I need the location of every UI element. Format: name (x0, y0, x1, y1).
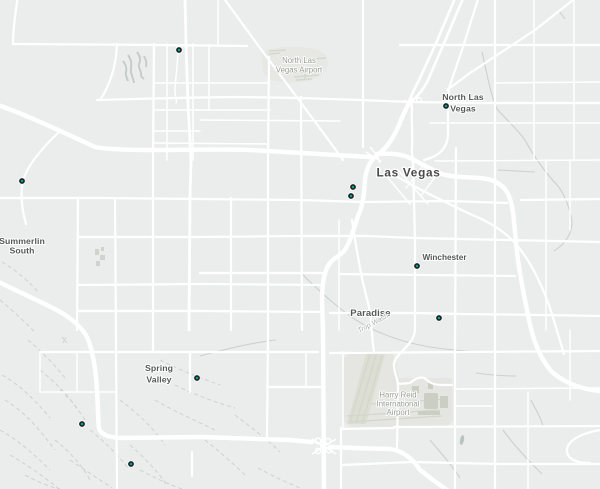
svg-text:North Las: North Las (282, 56, 316, 65)
svg-text:North Las: North Las (442, 92, 484, 102)
svg-text:Airport: Airport (387, 408, 411, 417)
svg-text:Spring: Spring (145, 363, 173, 373)
svg-text:Harry Reid: Harry Reid (379, 391, 416, 400)
svg-text:South: South (9, 246, 34, 256)
svg-text:Vegas Airport: Vegas Airport (276, 66, 323, 75)
svg-text:Winchester: Winchester (422, 253, 467, 262)
svg-text:Vegas: Vegas (450, 104, 476, 114)
svg-text:Valley: Valley (146, 375, 171, 385)
svg-text:Las Vegas: Las Vegas (376, 166, 440, 180)
svg-text:Summerlin: Summerlin (0, 236, 45, 246)
